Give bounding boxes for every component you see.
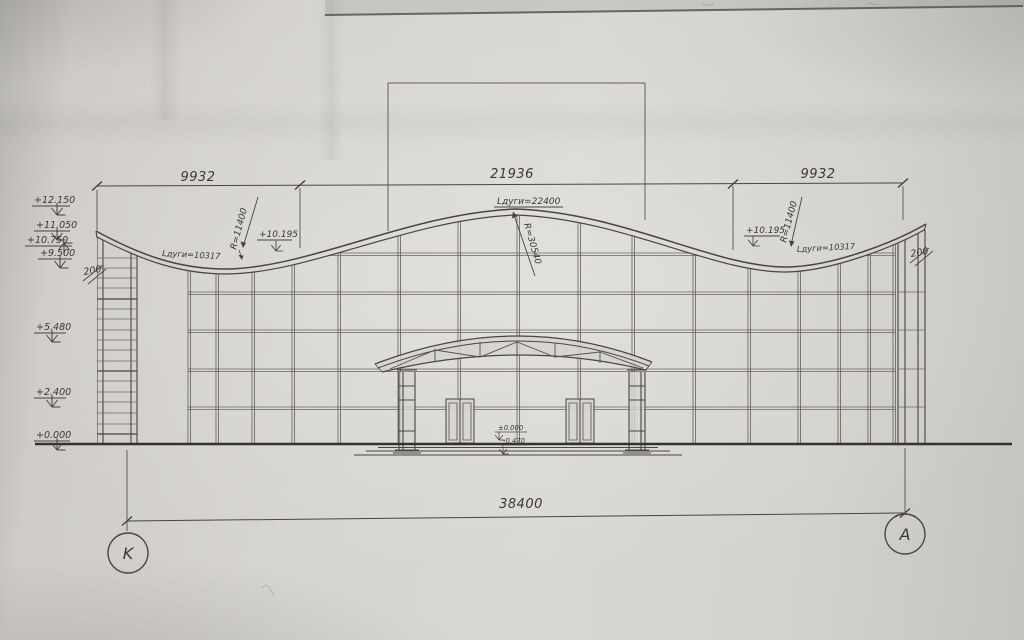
- dim-label-left-span: 9932: [180, 170, 215, 185]
- level-mark: +0.000: [36, 430, 71, 441]
- level-mark: +12.150: [34, 195, 75, 206]
- axis-letter-left: K: [123, 544, 135, 563]
- roof-level-label-right: +10.195: [746, 226, 785, 236]
- building-elevation: [35, 83, 1012, 455]
- level-mark: +5.480: [36, 322, 71, 333]
- canopy-column-left: [393, 370, 421, 453]
- dim-label-center-span: 21936: [490, 167, 534, 182]
- bottom-dimension: 38400 K A: [108, 448, 925, 573]
- roof-annotations-center: Lдуги=22400 R=30540: [494, 197, 563, 276]
- thickness-label-left: 200: [83, 264, 103, 278]
- left-wing-louvers: [97, 225, 137, 444]
- roof-radius-label-left: R=11400: [229, 207, 250, 251]
- photo-of-architectural-elevation-drawing: 9932 21936 9932 38400 K A +12.150 +11.05…: [0, 0, 1024, 640]
- roof-level-label-left: +10.195: [259, 230, 298, 240]
- roof-arc-label-center: Lдуги=22400: [497, 197, 561, 207]
- level-mark: +2.400: [36, 387, 71, 398]
- dim-label-total: 38400: [499, 497, 543, 512]
- roof-curve: [96, 209, 926, 274]
- pencil-mark: [262, 585, 274, 595]
- entrance-canopy-truss: [375, 336, 652, 453]
- level-mark: +9.500: [40, 248, 75, 259]
- thickness-label-right: 200: [910, 246, 930, 260]
- roof-radius-label-right: R=11400: [779, 200, 800, 244]
- curtain-wall-grid: [97, 200, 925, 444]
- level-mark: +10.750: [27, 235, 68, 246]
- elevation-drawing: 9932 21936 9932 38400 K A +12.150 +11.05…: [0, 0, 1024, 640]
- paper-top-edge: [262, 0, 1024, 595]
- roof-arc-label-left: Lдуги=10317: [162, 248, 222, 261]
- entrance-minus-label: -0.470: [503, 437, 525, 445]
- elevation-marks-left: +12.150 +11.050 +10.750 +9.500 +5.480 +2…: [25, 195, 77, 450]
- entrance-zero-label: ±0.000: [498, 424, 523, 432]
- dim-label-right-span: 9932: [800, 167, 835, 182]
- roof-annotations-left: R=11400 +10.195 Lдуги=10317: [162, 197, 298, 261]
- entrance-level-marks: ±0.000 -0.470: [495, 424, 529, 454]
- roof-arc-label-right: Lдуги=10317: [797, 241, 857, 254]
- roof-annotations-right: +10.195 R=11400 Lдуги=10317: [744, 197, 856, 254]
- canopy-column-right: [623, 370, 651, 453]
- axis-letter-right: A: [899, 525, 911, 544]
